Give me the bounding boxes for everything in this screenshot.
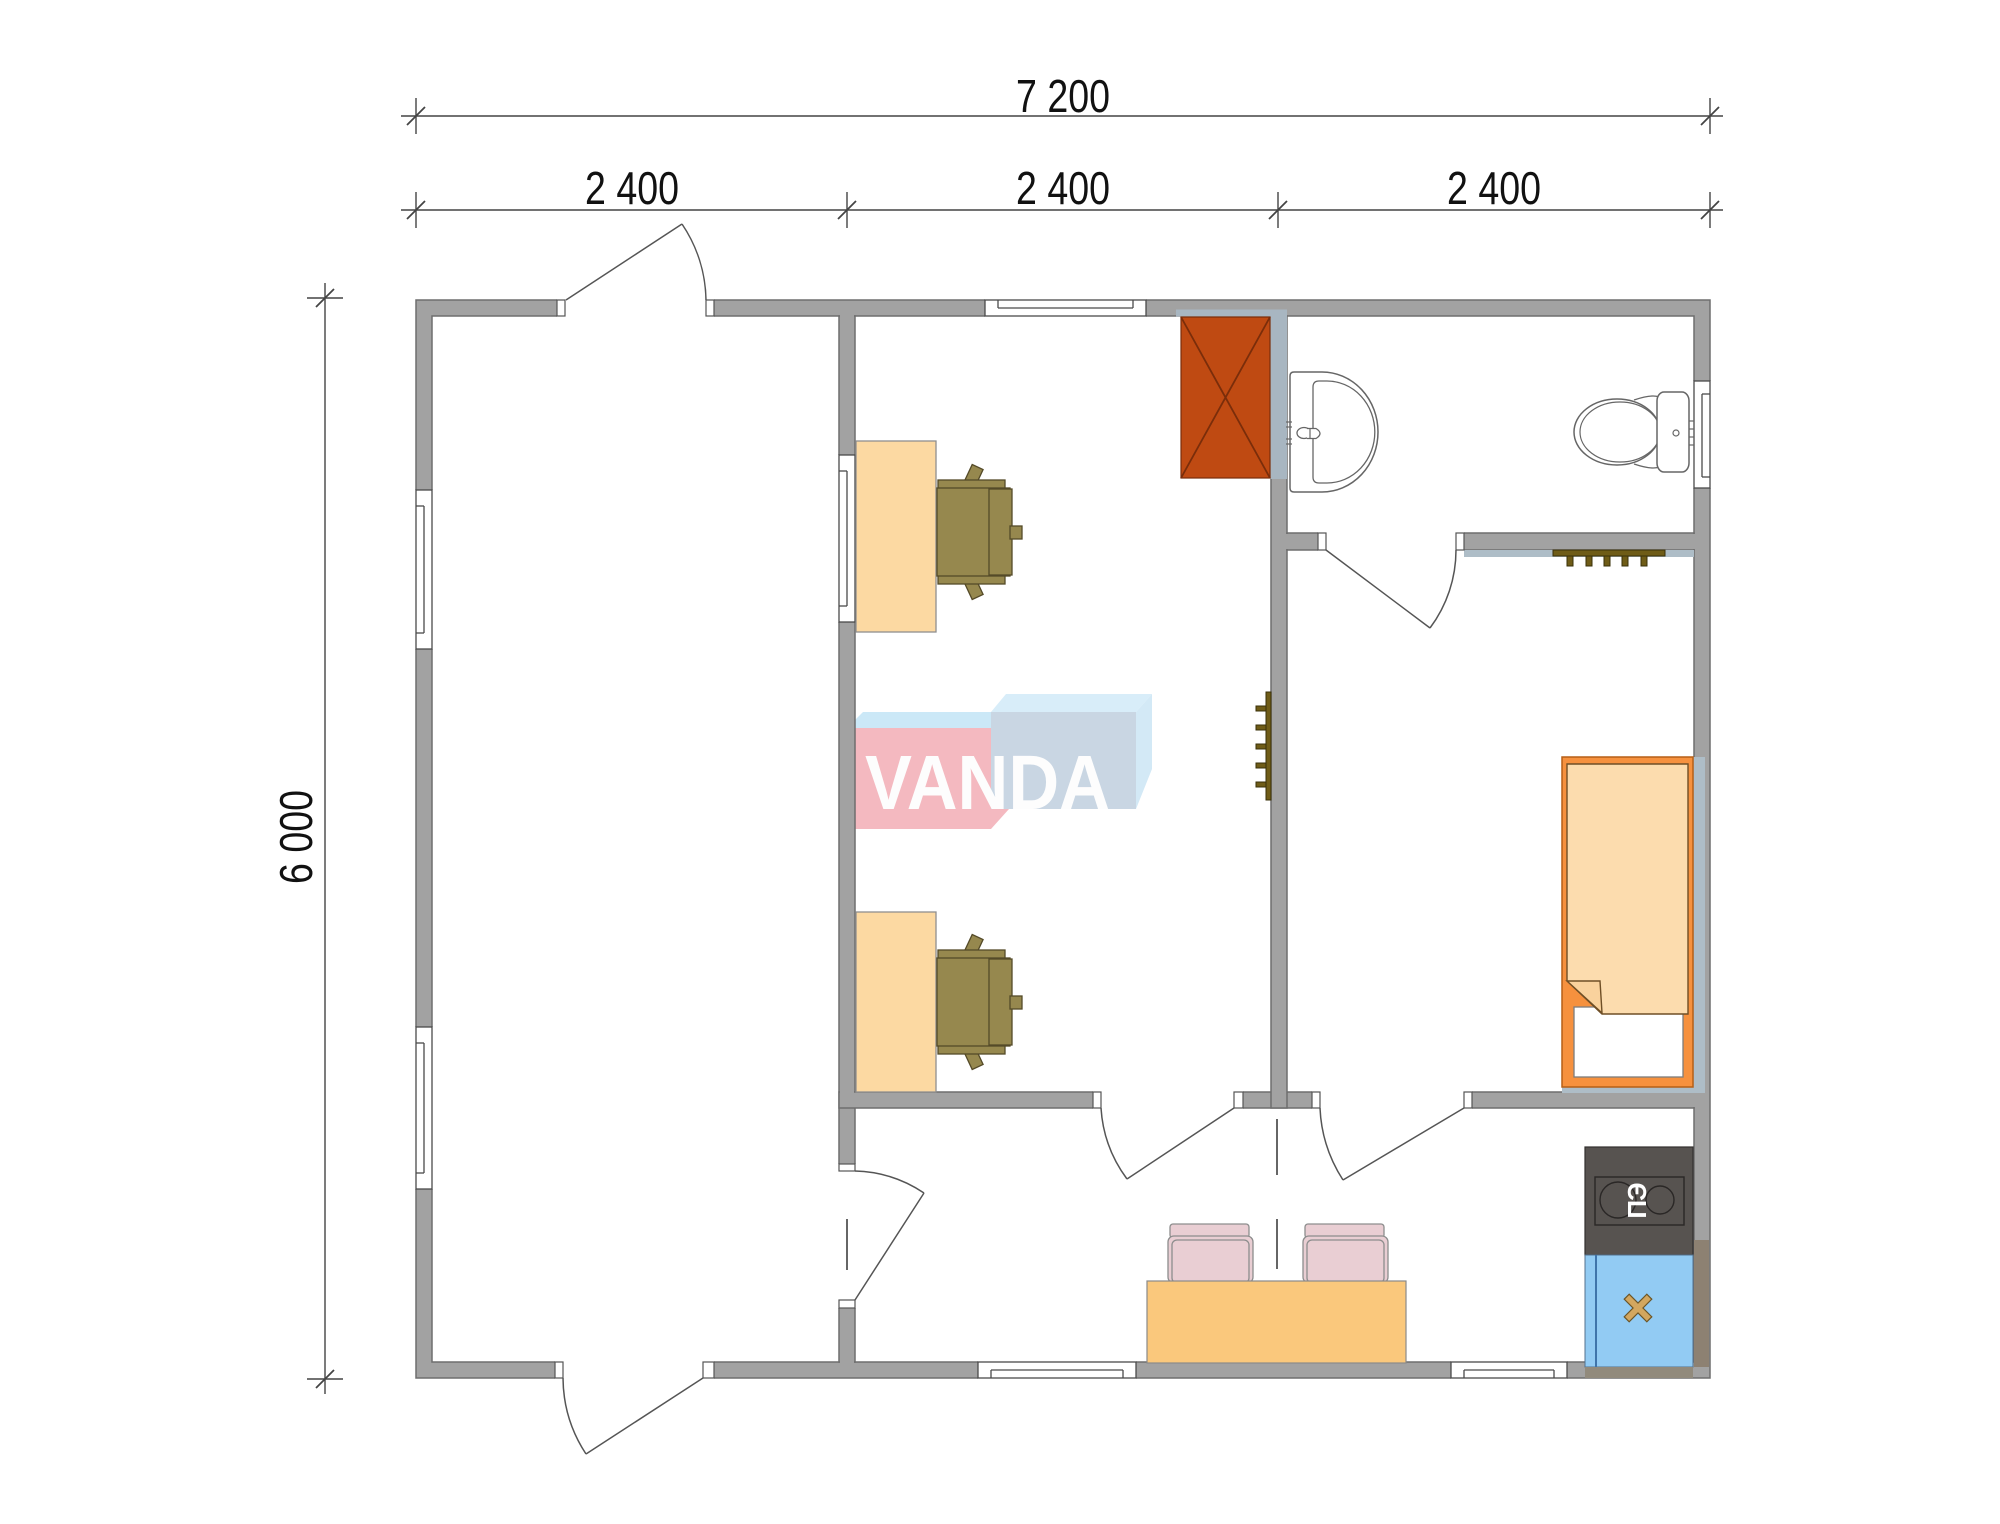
svg-text:6 000: 6 000 xyxy=(270,790,322,884)
svg-text:2 400: 2 400 xyxy=(1016,162,1110,214)
svg-text:ПЭ: ПЭ xyxy=(1622,1183,1652,1219)
svg-text:2 400: 2 400 xyxy=(1447,162,1541,214)
svg-text:VANDA: VANDA xyxy=(865,740,1110,826)
svg-text:2 400: 2 400 xyxy=(585,162,679,214)
svg-text:7 200: 7 200 xyxy=(1016,70,1110,122)
